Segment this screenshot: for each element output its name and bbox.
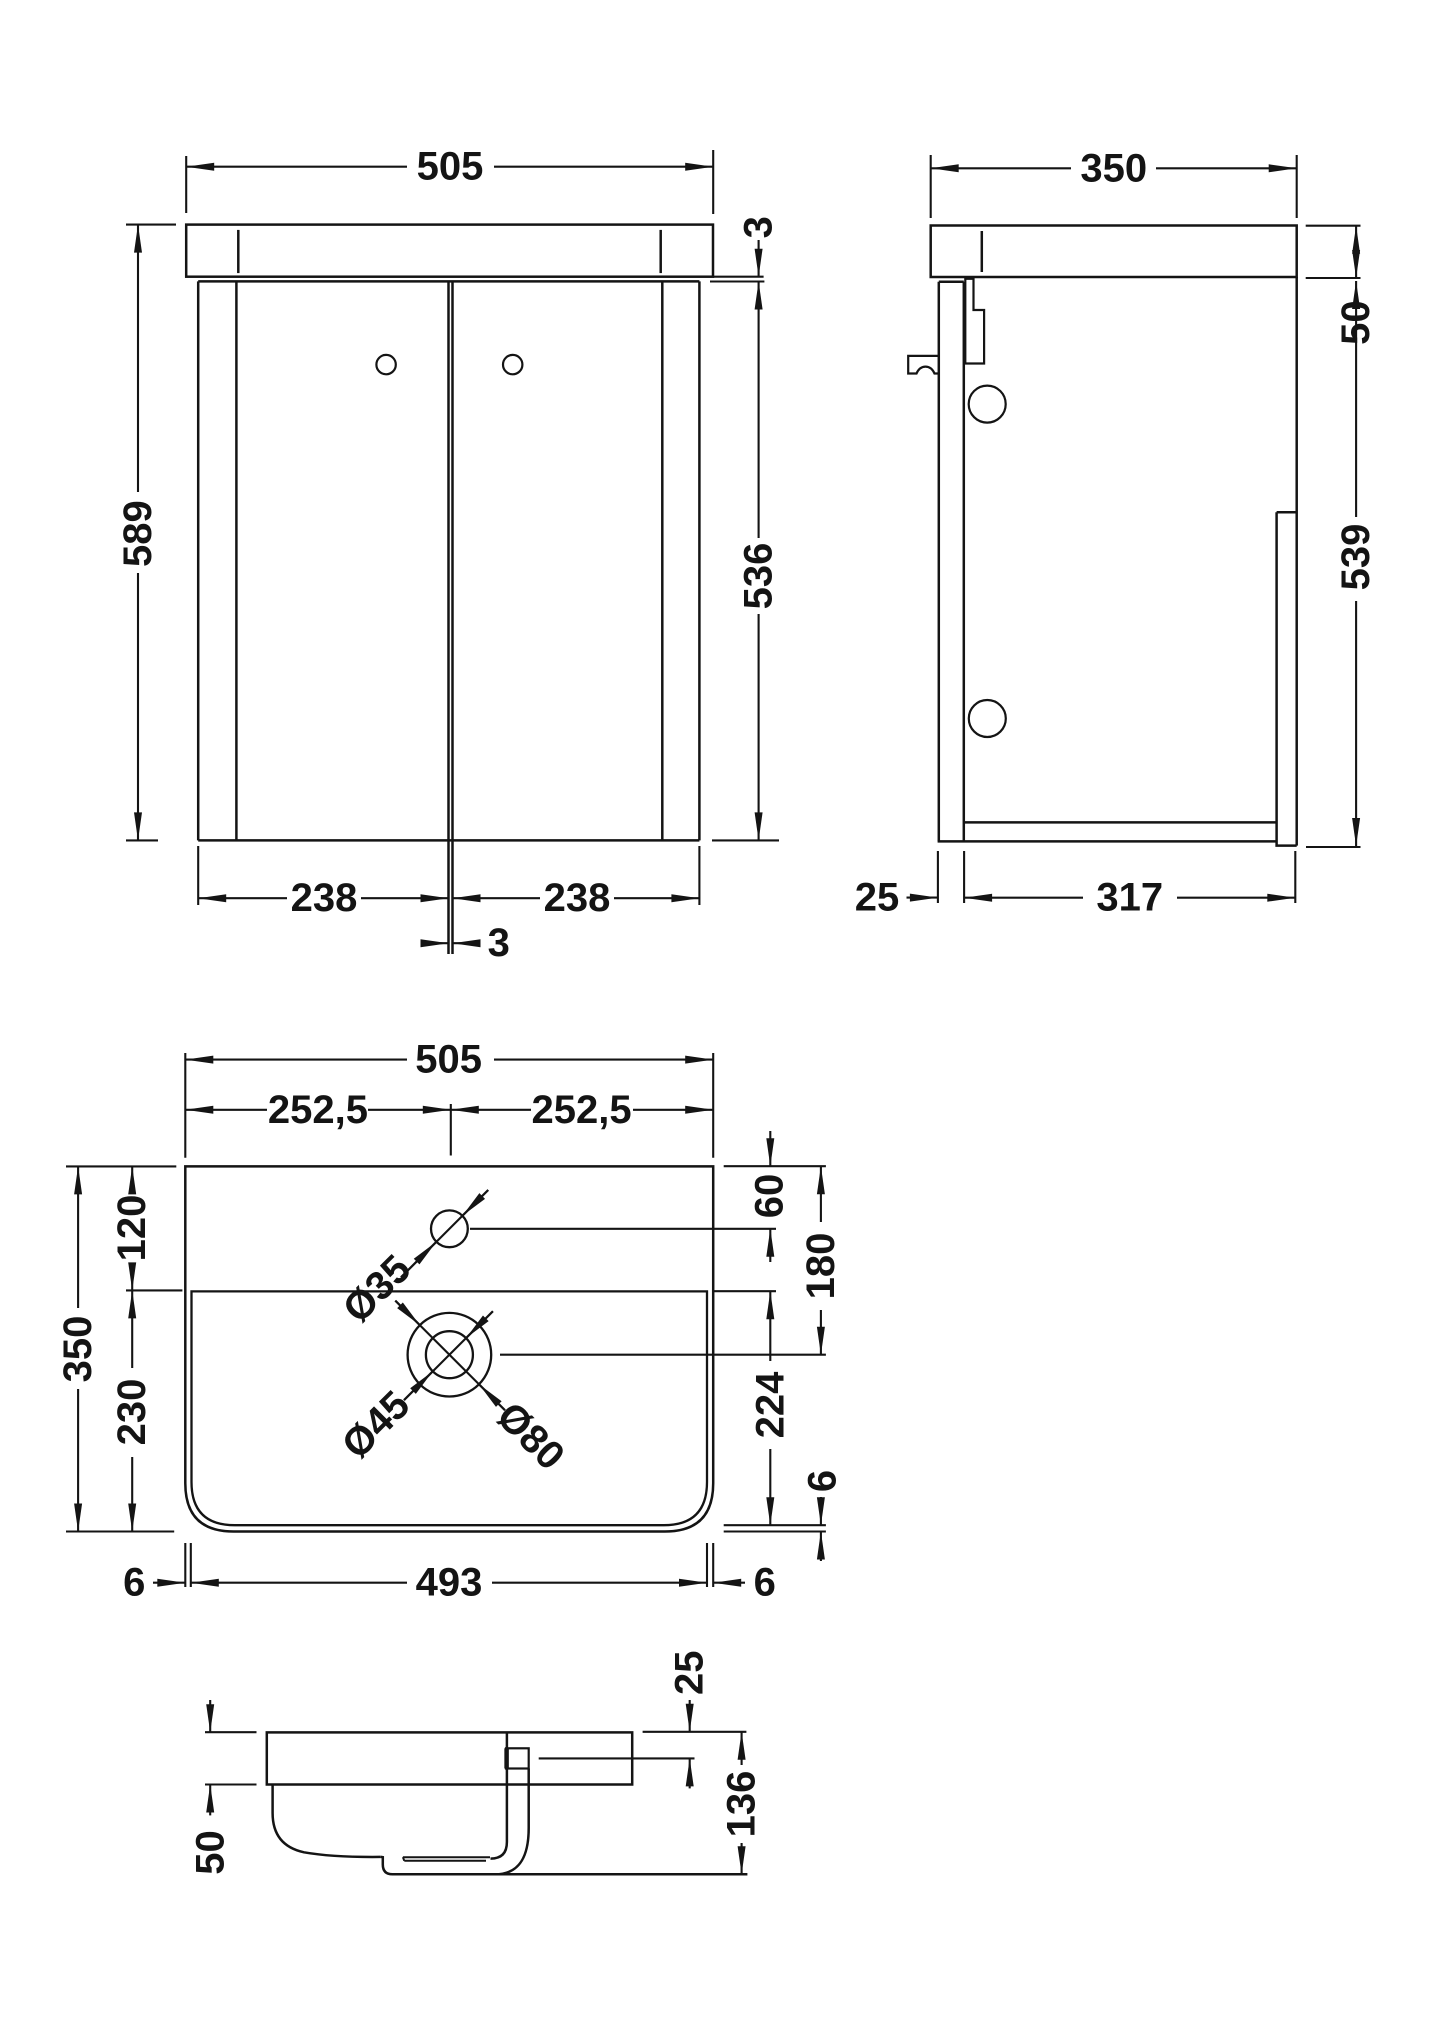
svg-text:3: 3 [736,216,780,238]
svg-text:60: 60 [748,1174,792,1219]
svg-text:50: 50 [1334,300,1378,345]
svg-text:180: 180 [799,1233,843,1300]
svg-text:238: 238 [291,876,358,920]
svg-text:25: 25 [668,1650,712,1695]
svg-text:6: 6 [754,1561,776,1605]
svg-text:252,5: 252,5 [532,1088,632,1132]
svg-text:505: 505 [415,1038,482,1082]
svg-text:6: 6 [801,1470,845,1492]
svg-text:238: 238 [544,876,611,920]
svg-text:6: 6 [123,1561,145,1605]
svg-text:539: 539 [1334,524,1378,591]
svg-text:505: 505 [417,145,484,189]
svg-text:536: 536 [737,543,781,610]
svg-text:Ø35: Ø35 [335,1247,420,1332]
svg-text:230: 230 [110,1379,154,1446]
svg-text:224: 224 [748,1371,792,1438]
svg-text:50: 50 [189,1830,233,1875]
svg-text:350: 350 [56,1316,100,1383]
svg-text:25: 25 [855,875,900,919]
svg-text:317: 317 [1096,876,1163,920]
svg-text:252,5: 252,5 [268,1088,368,1132]
svg-text:136: 136 [720,1771,764,1838]
svg-text:350: 350 [1080,146,1147,190]
svg-text:493: 493 [416,1561,483,1605]
svg-text:120: 120 [110,1195,154,1262]
svg-text:3: 3 [488,921,510,965]
svg-text:589: 589 [116,500,160,567]
svg-text:Ø45: Ø45 [334,1383,419,1468]
